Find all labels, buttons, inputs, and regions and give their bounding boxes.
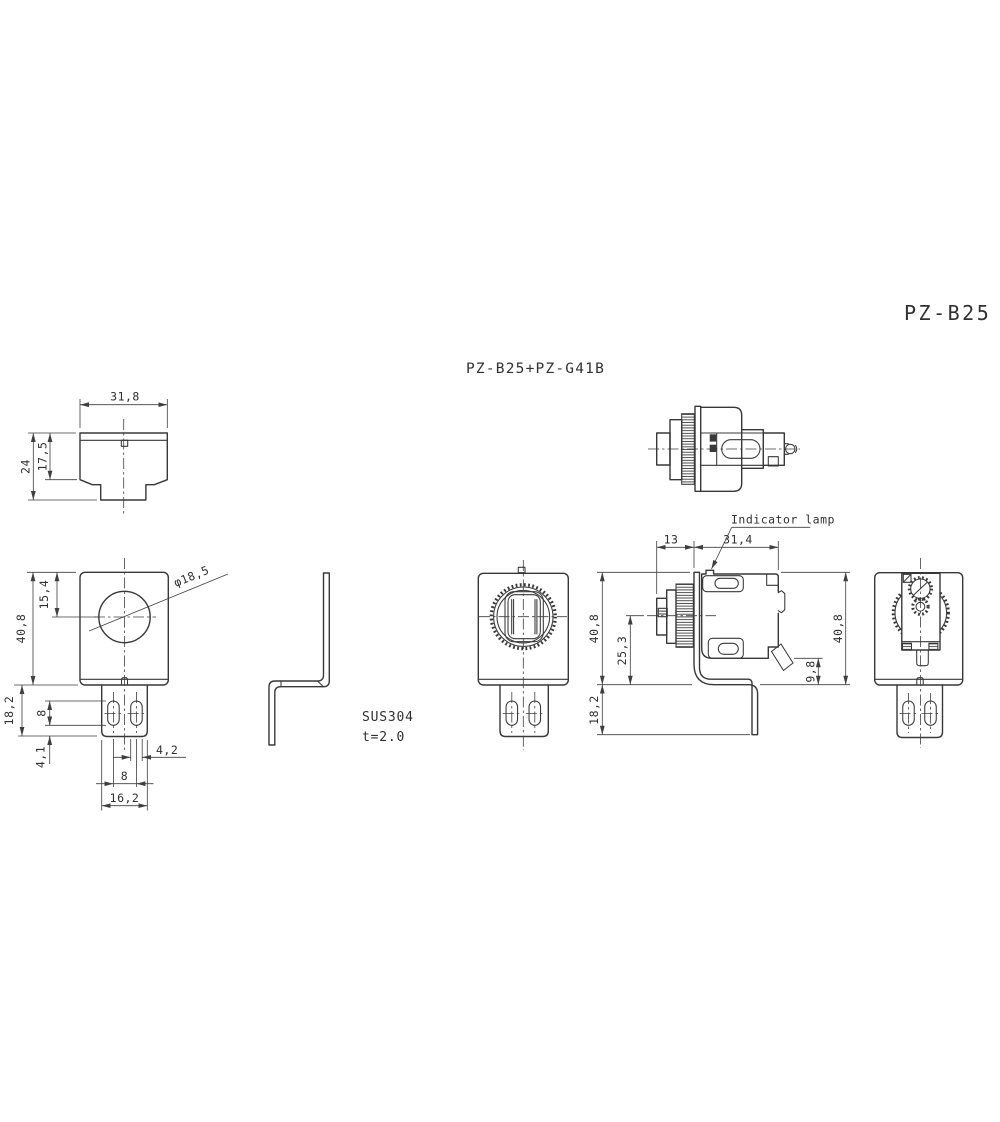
buzzer-rear-housing <box>902 573 940 650</box>
dim-slot-length: 8 <box>35 709 49 716</box>
dim-front-height: 40,8 <box>14 614 28 644</box>
dim-leg-width: 16,2 <box>110 791 140 805</box>
anti-rotation-notch <box>121 440 127 446</box>
mounting-leg <box>897 685 943 738</box>
view-assembly-front <box>478 560 568 750</box>
indicator-lamp-label: Indicator lamp <box>731 513 835 527</box>
view-bracket-front: φ18,5 40,8 15,4 18,2 8 4,1 4,2 8 16,2 <box>2 558 228 811</box>
release-lever <box>772 644 794 671</box>
dim-lever-offset: 9,8 <box>804 660 818 682</box>
dim-slot-width: 4,2 <box>156 743 178 757</box>
dim-hole-offset: 15,4 <box>37 580 51 610</box>
knurled-nut <box>682 414 695 485</box>
view-bracket-top: 31,8 24 17,5 <box>19 390 168 514</box>
drawing-sheet: PZ-B25 PZ-B25+PZ-G41B 31,8 24 17,5 φ18,5 <box>0 0 1000 1122</box>
page-title: PZ-B25 <box>904 301 991 325</box>
view-assembly-side: Indicator lamp 13 31,4 40,8 25,3 18,2 40… <box>587 513 850 735</box>
dim-top-inner-height: 17,5 <box>35 442 49 472</box>
dim-hole-dia: φ18,5 <box>172 563 212 590</box>
view-assembly-rear <box>875 558 963 748</box>
dim-leg-height: 18,2 <box>2 696 16 726</box>
hole-dia-leader <box>89 574 228 631</box>
dim-slot-end: 4,1 <box>34 746 48 768</box>
dim-height-left: 40,8 <box>587 614 601 644</box>
dim-slot-pitch: 8 <box>121 769 128 783</box>
bracket-plate <box>80 572 168 685</box>
view-bracket-side: SUS304 t=2.0 <box>269 573 414 745</box>
cable-stub <box>917 650 929 666</box>
dim-top-height: 24 <box>19 459 33 474</box>
dim-body-depth: 31,4 <box>723 532 753 546</box>
view-assembly-top <box>648 406 800 491</box>
material-grade: SUS304 <box>362 710 414 725</box>
material-thickness: t=2.0 <box>362 730 405 745</box>
dim-front-depth: 13 <box>664 532 679 546</box>
cad-drawing: PZ-B25 PZ-B25+PZ-G41B 31,8 24 17,5 φ18,5 <box>0 0 1000 1122</box>
latch <box>778 591 785 613</box>
terminal-screw <box>710 445 717 452</box>
dim-top-width: 31,8 <box>110 390 140 404</box>
terminal-screw <box>710 434 717 441</box>
dim-leg-height: 18,2 <box>587 695 601 725</box>
dim-height-right: 40,8 <box>831 614 845 644</box>
dim-center-height: 25,3 <box>615 636 629 666</box>
locating-tab <box>518 567 525 572</box>
bracket-profile <box>694 572 758 734</box>
assembly-subtitle: PZ-B25+PZ-G41B <box>466 361 605 377</box>
